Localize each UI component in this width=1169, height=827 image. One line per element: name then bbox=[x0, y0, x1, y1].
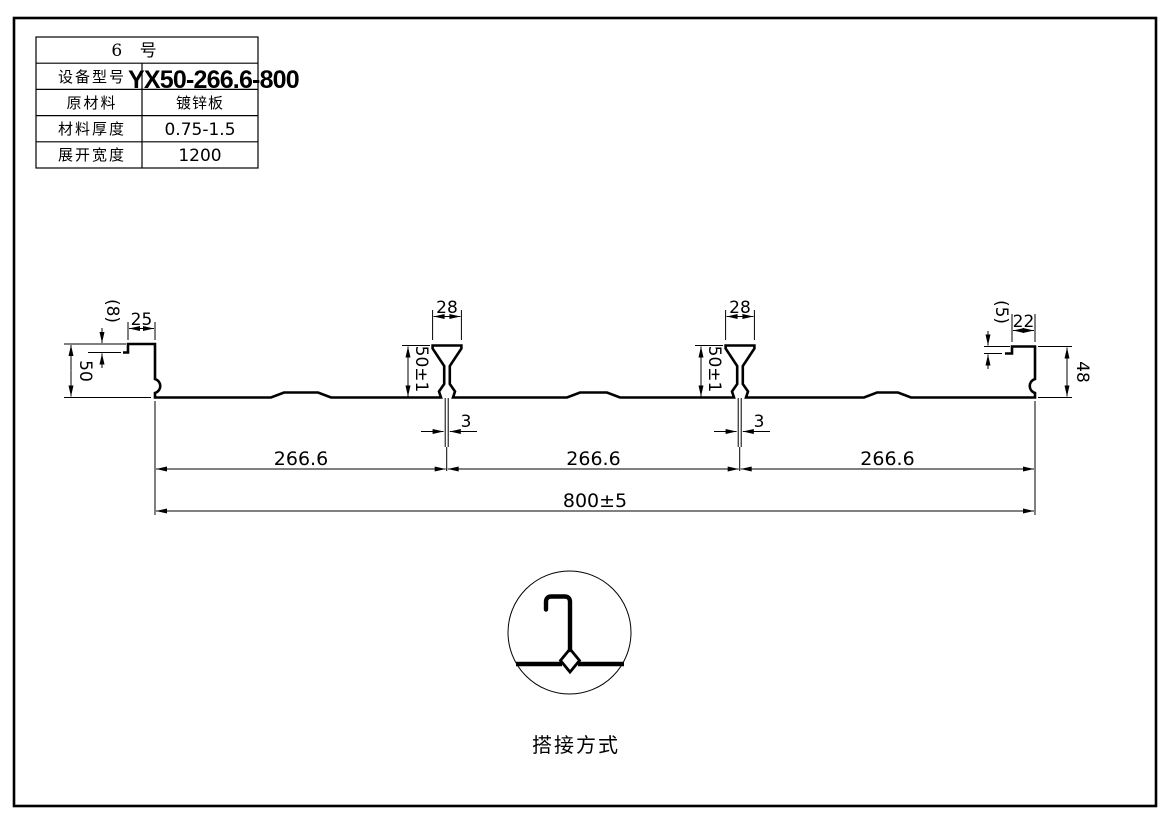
dim-text-rib1-width: 28 bbox=[436, 298, 458, 318]
dim-text-rib2-height: 50±1 bbox=[704, 346, 724, 393]
row-value-model: YX50-266.6-800 bbox=[128, 66, 299, 94]
title-block: 6 号 设备型号 YX50-266.6-800 原材料 镀锌板 材料厚度 0.7… bbox=[36, 37, 299, 168]
detail-hook-profile bbox=[546, 597, 570, 651]
dim-text-right-step: (5) bbox=[991, 300, 1011, 324]
row-label-thickness: 材料厚度 bbox=[58, 120, 126, 138]
row-value-unfolded-width: 1200 bbox=[178, 146, 221, 166]
row-value-material: 镀锌板 bbox=[176, 94, 224, 112]
row-label-unfolded-width: 展开宽度 bbox=[58, 146, 126, 164]
dim-text-rib2-slot: 3 bbox=[754, 412, 765, 432]
dim-text-overall: 800±5 bbox=[563, 490, 627, 512]
row-label-material: 原材料 bbox=[66, 94, 117, 112]
dim-text-rib2-width: 28 bbox=[729, 298, 751, 318]
detail-caption: 搭接方式 bbox=[532, 733, 620, 757]
profile-section bbox=[123, 344, 1035, 447]
row-value-thickness: 0.75-1.5 bbox=[164, 120, 235, 140]
dimensions: 50 (8) 25 28 50±1 3 28 bbox=[64, 298, 1092, 515]
dim-text-rib1-slot: 3 bbox=[461, 412, 472, 432]
drawing-sheet: 6 号 设备型号 YX50-266.6-800 原材料 镀锌板 材料厚度 0.7… bbox=[0, 0, 1169, 827]
row-label-model: 设备型号 bbox=[58, 68, 126, 86]
cad-drawing: 6 号 设备型号 YX50-266.6-800 原材料 镀锌板 材料厚度 0.7… bbox=[0, 0, 1169, 827]
detail-seam-diamond bbox=[561, 649, 580, 672]
dim-text-span3: 266.6 bbox=[860, 448, 914, 470]
dim-text-span1: 266.6 bbox=[274, 448, 328, 470]
dim-text-left-step: (8) bbox=[102, 299, 122, 323]
lap-joint-detail: 搭接方式 bbox=[508, 571, 631, 757]
dim-text-left-top: 25 bbox=[131, 310, 153, 330]
dim-text-span2: 266.6 bbox=[566, 448, 620, 470]
dim-text-left-height: 50 bbox=[75, 360, 95, 382]
drawing-number: 6 号 bbox=[111, 41, 162, 61]
dim-text-right-height: 48 bbox=[1072, 361, 1092, 383]
dim-text-rib1-height: 50±1 bbox=[411, 346, 431, 393]
dim-text-right-top: 22 bbox=[1013, 312, 1035, 332]
profile-outline bbox=[123, 344, 1035, 398]
